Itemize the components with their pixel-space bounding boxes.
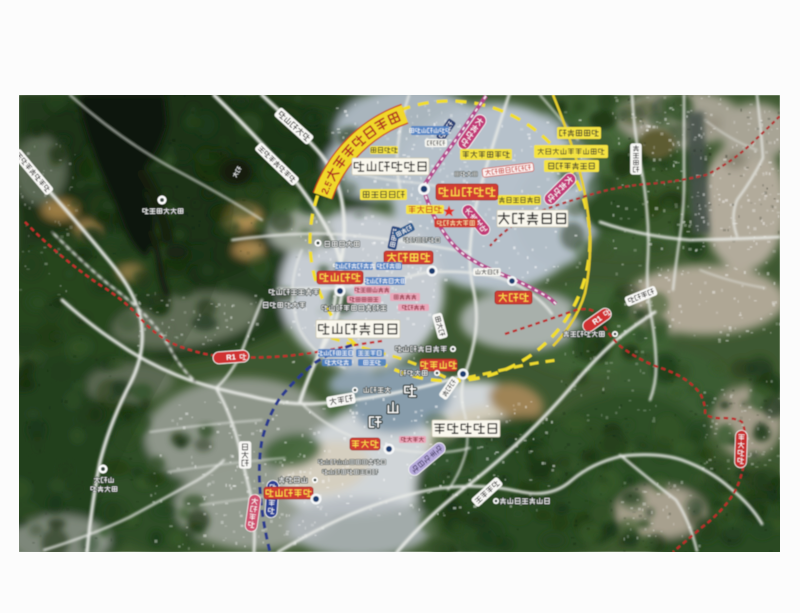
svg-text:R1: R1: [226, 352, 236, 362]
